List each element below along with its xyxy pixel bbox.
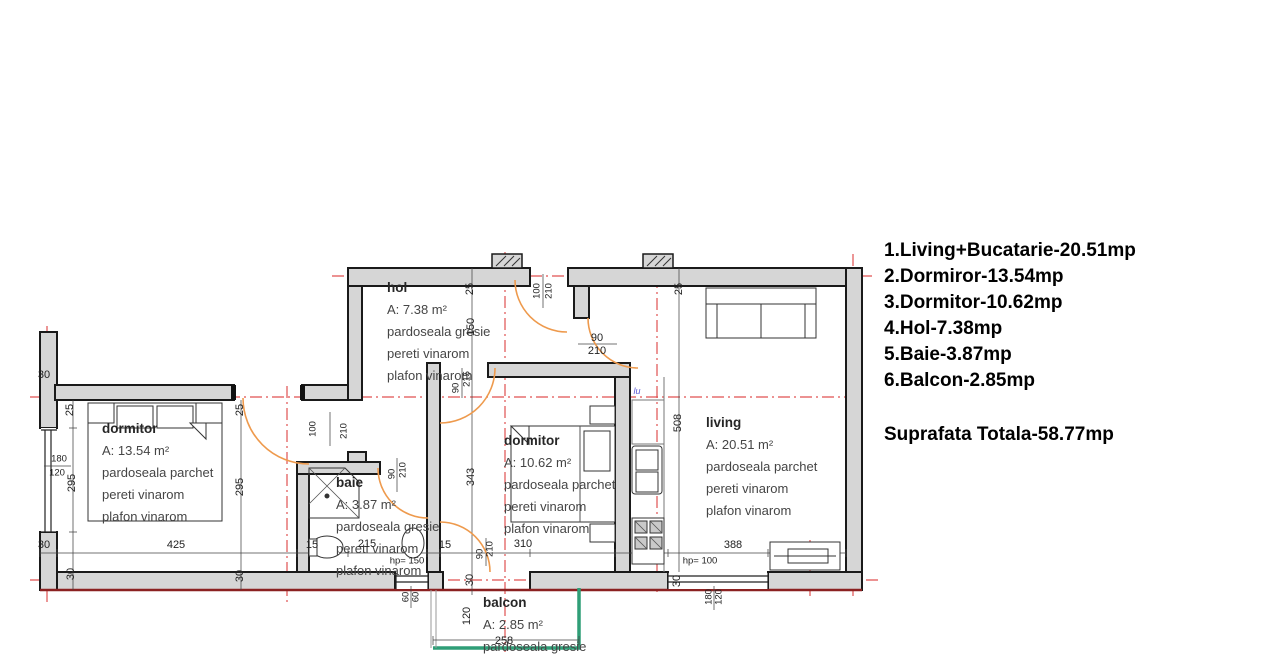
wall-stub-hatches xyxy=(492,254,673,268)
dim-offset: 25 xyxy=(64,404,76,416)
dim-door-dorm2-height: 215 xyxy=(462,371,473,387)
dim-hol-height: 150 xyxy=(465,318,477,336)
room-name: dormitor xyxy=(504,430,615,452)
dim-door-dorm1-width: 100 xyxy=(308,421,319,437)
dim-door-baie-height: 210 xyxy=(398,462,409,478)
dim-door-entry-height: 210 xyxy=(544,283,555,299)
dim-dorm2-width: 310 xyxy=(514,538,532,550)
dim-balcon-width: 258 xyxy=(495,635,513,647)
dim-wall: 30 xyxy=(464,574,476,586)
room-name: living xyxy=(706,412,817,434)
dim-baie-width: 215 xyxy=(358,538,376,550)
kitchen-counter xyxy=(632,377,664,572)
dim-door-dorm1-height: 210 xyxy=(339,423,350,439)
dim-jamb: 15 xyxy=(306,539,318,551)
dim-door-living-width: 90 xyxy=(591,332,603,344)
dim-jamb: 15 xyxy=(439,539,451,551)
room-label-living: living A: 20.51 m² pardoseala parchet pe… xyxy=(706,412,817,522)
dim-dorm1-width: 425 xyxy=(167,539,185,551)
dim-wall: 30 xyxy=(234,570,246,582)
room-finish: pardoseala gresie xyxy=(336,516,439,538)
room-finish: pardoseala parchet xyxy=(706,456,817,478)
dim-door-balcon-height: 210 xyxy=(485,541,496,557)
dim-offset: 25 xyxy=(234,404,246,416)
room-name: dormitor xyxy=(102,418,213,440)
room-finish: pardoseala parchet xyxy=(102,462,213,484)
room-name: balcon xyxy=(483,592,586,614)
room-finish: pereti vinarom xyxy=(387,343,490,365)
dim-door-dorm2-width: 90 xyxy=(451,383,462,394)
room-area: A: 2.85 m² xyxy=(483,614,586,636)
lu-annotation: lu xyxy=(633,386,640,396)
legend-item: 5.Baie-3.87mp xyxy=(884,342,1136,368)
dim-wall: 30 xyxy=(671,575,683,587)
legend: 1.Living+Bucatarie-20.51mp 2.Dormiror-13… xyxy=(884,238,1136,448)
sofa xyxy=(706,288,816,338)
room-finish: pardoseala parchet xyxy=(504,474,615,496)
dim-door-living-height: 210 xyxy=(588,345,606,357)
dim-door-baie-width: 90 xyxy=(387,469,398,480)
legend-item: 4.Hol-7.38mp xyxy=(884,316,1136,342)
floorplan-page: hol A: 7.38 m² pardoseala gresie pereti … xyxy=(0,0,1270,656)
room-label-dormitor2: dormitor A: 10.62 m² pardoseala parchet … xyxy=(504,430,615,540)
radiator xyxy=(770,542,840,570)
room-finish: plafon vinarom xyxy=(504,518,615,540)
dim-dorm2-height: 343 xyxy=(465,468,477,486)
legend-item: 3.Dormitor-10.62mp xyxy=(884,290,1136,316)
dim-window1-width: 180 xyxy=(51,454,67,465)
dim-offset: 25 xyxy=(673,283,685,295)
dim-door-entry-width: 100 xyxy=(532,283,543,299)
dim-wall: 30 xyxy=(65,568,77,580)
room-finish: pereti vinarom xyxy=(706,478,817,500)
kitchen-stove xyxy=(632,518,664,564)
dim-parapet-baie: hp= 150 xyxy=(390,556,425,567)
room-finish: plafon vinarom xyxy=(706,500,817,522)
legend-total-area: Suprafata Totala-58.77mp xyxy=(884,422,1136,448)
dim-window1-sill: 120 xyxy=(49,468,65,479)
dim-dorm1-height: 295 xyxy=(234,478,246,496)
dim-balcon-depth: 120 xyxy=(461,607,473,625)
room-area: A: 13.54 m² xyxy=(102,440,213,462)
door-jambs xyxy=(231,385,305,400)
dim-window-baie-height: 60 xyxy=(411,592,422,603)
room-area: A: 3.87 m² xyxy=(336,494,439,516)
dim-living-width: 388 xyxy=(724,539,742,551)
room-finish: pereti vinarom xyxy=(102,484,213,506)
legend-item: 2.Dormiror-13.54mp xyxy=(884,264,1136,290)
legend-item: 1.Living+Bucatarie-20.51mp xyxy=(884,238,1136,264)
dim-offset: 25 xyxy=(464,283,476,295)
room-area: A: 20.51 m² xyxy=(706,434,817,456)
room-area: A: 10.62 m² xyxy=(504,452,615,474)
room-finish: plafon vinarom xyxy=(102,506,213,528)
dim-wall-left-top: 30 xyxy=(38,369,50,381)
dim-window-living-sill: 120 xyxy=(714,589,725,605)
room-finish: plafon vinarom xyxy=(387,365,490,387)
dim-wall: 30 xyxy=(38,539,50,551)
dim-living-height: 508 xyxy=(672,414,684,432)
dim-parapet-living: hp= 100 xyxy=(683,556,718,567)
dim-dorm1-height: 295 xyxy=(66,474,78,492)
room-finish: pereti vinarom xyxy=(504,496,615,518)
room-label-dormitor1: dormitor A: 13.54 m² pardoseala parchet … xyxy=(102,418,213,528)
legend-item: 6.Balcon-2.85mp xyxy=(884,368,1136,394)
